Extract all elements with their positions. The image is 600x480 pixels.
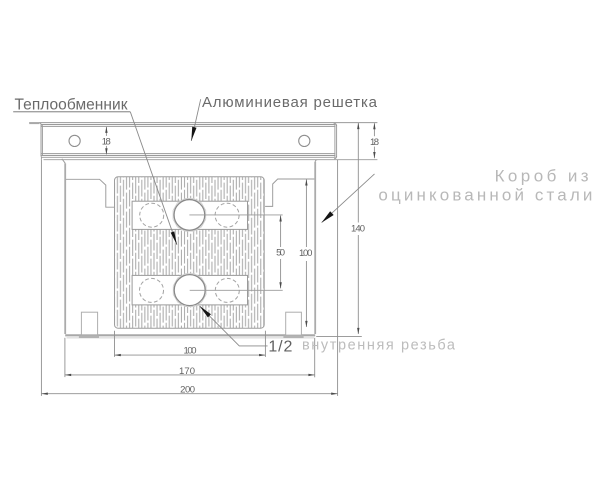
svg-text:1/2: 1/2	[268, 338, 292, 355]
svg-text:18: 18	[370, 137, 379, 148]
svg-text:140: 140	[351, 224, 365, 235]
svg-text:100: 100	[184, 346, 197, 357]
svg-text:170: 170	[179, 366, 195, 377]
svg-text:оцинкованной стали: оцинкованной стали	[378, 185, 592, 204]
svg-text:200: 200	[180, 384, 195, 395]
svg-text:100: 100	[299, 248, 313, 259]
svg-text:внутренняя резьба: внутренняя резьба	[302, 338, 456, 354]
svg-text:Алюминиевая решетка: Алюминиевая решетка	[202, 94, 378, 111]
svg-text:Короб из: Короб из	[495, 166, 589, 185]
svg-text:18: 18	[102, 137, 111, 148]
svg-text:Теплообменник: Теплообменник	[15, 97, 128, 114]
svg-text:50: 50	[276, 247, 285, 258]
